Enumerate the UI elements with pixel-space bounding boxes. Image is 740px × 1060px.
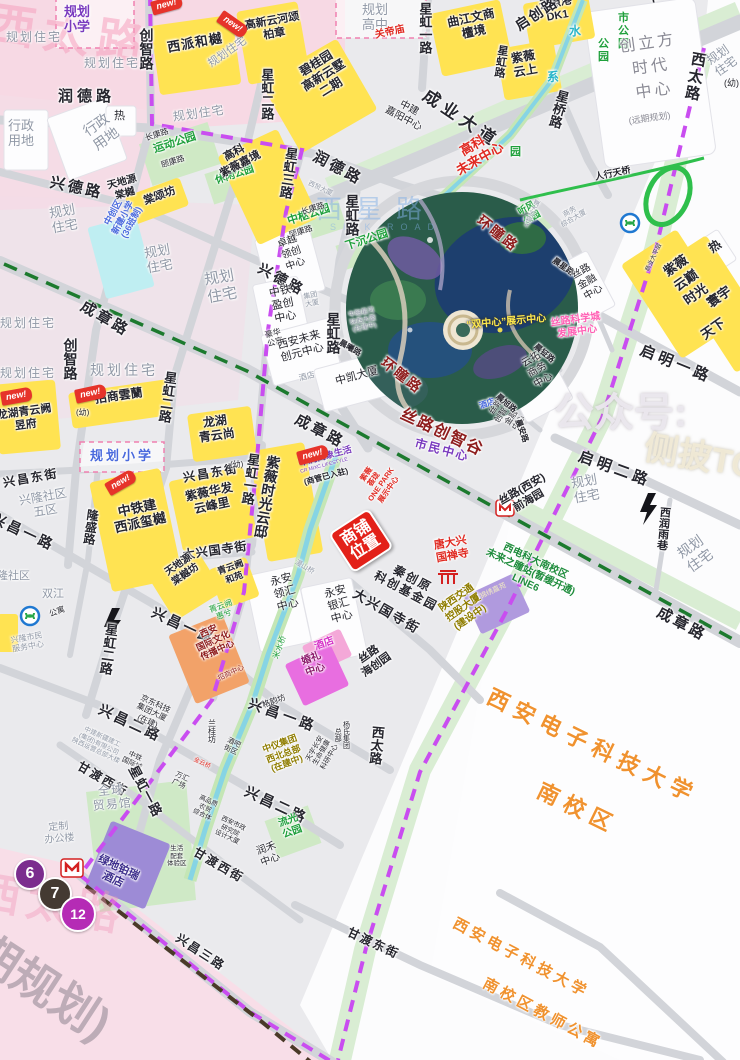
map-label: 甘渡东街 bbox=[345, 925, 402, 962]
map-label: 高品质 农贸 综合体 bbox=[191, 794, 218, 823]
map-label: 酒吧 街区 bbox=[222, 737, 242, 758]
map-label: 定制 办公楼 bbox=[43, 820, 75, 846]
map-label: 规划 小学 bbox=[64, 4, 90, 35]
map-label: 商务 综合大厦 bbox=[556, 202, 588, 230]
map-label: 兴隆社区 bbox=[0, 570, 30, 583]
map-label: 行政 用地 bbox=[8, 118, 34, 149]
map-label: 西派和樾 bbox=[166, 30, 224, 55]
map-label: 丝路 金融 中心 bbox=[570, 262, 605, 303]
map-label: 中融星河 陕西大厦 (在建中) bbox=[348, 307, 378, 335]
map-label: 星桥路 bbox=[546, 88, 571, 130]
map-label: 润德路 bbox=[58, 88, 115, 106]
map-label: 锦绣嘉苑 bbox=[479, 582, 508, 601]
map-label: 丝路 海创园 bbox=[352, 640, 394, 680]
map-label: 创智路 bbox=[138, 28, 155, 70]
map-label: 甘渡西街 bbox=[191, 845, 247, 885]
map-label: 集团 大厦 bbox=[303, 291, 320, 310]
map-label: 公 园 bbox=[598, 38, 609, 64]
map-label: 规划 住宅 bbox=[674, 532, 716, 575]
map-label: 西星路 bbox=[316, 194, 436, 225]
map-label: 规划 住宅 bbox=[143, 241, 174, 276]
map-label: 永安 银汇 中心 bbox=[323, 583, 354, 626]
map-label: 规划住宅 bbox=[0, 366, 56, 380]
map-label: 规划住宅 bbox=[84, 56, 140, 70]
map-label: 兴昌东街 bbox=[2, 466, 60, 490]
map-label: 星虹二路 bbox=[259, 68, 274, 120]
map-label: 成章路 bbox=[77, 298, 133, 340]
map-label: 龙湖青云阙 昱府 bbox=[0, 402, 54, 435]
map-label: 西安市政 研究院 设计大厦 bbox=[213, 815, 246, 847]
map-label: 兴德路 bbox=[48, 174, 105, 203]
map-canvas: 西太路西星路SILK ROAD公众号:侧披TO西太路期规划)规划 小学创智路西派… bbox=[0, 0, 740, 1060]
map-label: 南校区 bbox=[533, 778, 623, 839]
map-label: 园 bbox=[510, 146, 521, 159]
map-label: 紫薇华发 云峰里 bbox=[184, 480, 237, 518]
map-label: 成章路 bbox=[654, 604, 710, 645]
map-label: 启明一路 bbox=[637, 342, 714, 387]
map-label: 规划 住宅 bbox=[570, 471, 601, 506]
map-label: 兴昌三路 bbox=[173, 931, 228, 973]
map-label: 西安未来 创元中心 bbox=[276, 329, 325, 365]
map-label: (远期规划) bbox=[628, 110, 671, 126]
map-label: 婚礼 中心 bbox=[300, 650, 327, 679]
map-label: 环瞳路 bbox=[378, 354, 426, 397]
map-label: 中凯大厦 bbox=[334, 365, 380, 389]
map-label: “双中心”展示中心 bbox=[466, 313, 547, 332]
map-label: (幼) bbox=[230, 460, 243, 469]
map-label: 西安电子科技大学 bbox=[450, 915, 593, 1002]
map-label: 创立方 时代 中心 bbox=[618, 28, 684, 107]
map-label: 规划住宅 bbox=[6, 30, 62, 44]
map-label: 米水桥 bbox=[271, 634, 288, 660]
map-label: 晨曦路 bbox=[337, 338, 363, 358]
map-label: 高新云河颂 柏章 bbox=[244, 10, 303, 45]
map-label: 唐大兴 国禅寺 bbox=[433, 534, 470, 565]
map-label: 隆盛路 bbox=[81, 508, 100, 546]
map-label: 星虹路 bbox=[344, 194, 361, 236]
map-label: 青云阙 和苑 bbox=[216, 558, 249, 587]
map-label: 热 bbox=[114, 110, 125, 123]
map-label: 期规划) bbox=[0, 922, 121, 1051]
map-label: 紫薇 云巅 时光 bbox=[660, 251, 712, 309]
map-label: 棠颂坊 bbox=[142, 185, 177, 208]
map-label: 颐康路 bbox=[160, 154, 186, 170]
map-label: 规划住宅 bbox=[0, 316, 56, 330]
metro-line-12-badge: 12 bbox=[60, 896, 96, 932]
map-label: 星虹路 bbox=[491, 44, 508, 78]
map-label: 润禾 中心 bbox=[255, 840, 282, 869]
map-label: 西太路 bbox=[681, 50, 707, 103]
map-label: 星虹二路 bbox=[97, 622, 119, 676]
map-label: 全球 贸易馆 bbox=[91, 782, 132, 814]
map-label: 公寓 bbox=[48, 605, 66, 619]
map-label: 西太路 bbox=[367, 725, 386, 765]
map-label: 公众号: bbox=[554, 390, 687, 437]
map-label: 金云桥 bbox=[192, 757, 211, 771]
map-label: (幼) bbox=[724, 78, 739, 89]
map-label: 西电科大南校区 未来之瞳站(暂缓开通) LINE6 bbox=[479, 536, 582, 609]
map-label: 生活 配套 体验区 bbox=[167, 845, 187, 868]
map-label: 西润雨巷 bbox=[654, 506, 671, 551]
map-label: 永安 领汇 中心 bbox=[269, 571, 300, 614]
map-label: 兴隆市民 服务中心 bbox=[10, 630, 45, 654]
map-label: 规划 住宅 bbox=[704, 42, 740, 79]
map-label: 侧披TO bbox=[641, 428, 740, 487]
map-label: 碧桂园 高新云墅 二期 bbox=[292, 45, 355, 106]
map-label: 万汇 广场 bbox=[170, 771, 190, 792]
map-label: 中创区 新建小学 (36班制) bbox=[100, 194, 145, 241]
map-label: 成业路 bbox=[646, 0, 690, 5]
map-label: 兰桂坊 bbox=[207, 719, 216, 743]
map-label: 星虹三路 bbox=[277, 146, 299, 200]
map-label: 人行天桥 bbox=[594, 165, 631, 183]
map-label: 星虹一路 bbox=[417, 2, 432, 54]
map-label: 曲江文商 檀境 bbox=[446, 6, 499, 44]
map-label: 中建新疆建工 (集团)有限公司 陕西运营总部大楼 bbox=[70, 723, 127, 766]
map-label: 创智路 bbox=[62, 338, 79, 380]
map-label: 卓越 领创 中心 bbox=[276, 233, 307, 273]
map-label: 热 bbox=[706, 237, 724, 255]
map-label: 水 bbox=[569, 24, 581, 38]
map-label: 酒店 bbox=[298, 370, 316, 383]
map-label: 中仪集团 西北总部 (在建中) bbox=[261, 733, 306, 775]
map-label: 天下 bbox=[698, 315, 728, 342]
map-label: 星虹二路 bbox=[156, 370, 178, 424]
map-label: 环瞳路 bbox=[474, 212, 522, 255]
map-label: 龙湖 青云尚 bbox=[196, 412, 236, 445]
map-label: 招商中心 bbox=[217, 664, 246, 683]
map-label: 兴隆社区 五区 bbox=[18, 486, 70, 522]
map-label: 双江 bbox=[42, 588, 64, 601]
map-label: 系 bbox=[547, 70, 559, 84]
map-label: 寰宇 bbox=[704, 283, 734, 310]
map-label: 规划小学 bbox=[90, 448, 154, 463]
map-label: 漫山桥 bbox=[293, 559, 315, 577]
map-label: 丝路科学城 发展中心 bbox=[550, 311, 603, 341]
map-label: 紫薇 荟珑 ONE PARK 展示中心 bbox=[352, 456, 403, 508]
map-label: 规划 住宅 bbox=[203, 267, 239, 307]
map-label: 星虹一路 bbox=[125, 763, 165, 820]
map-label: (幼) bbox=[76, 408, 89, 417]
map-label: 规划 住宅 bbox=[48, 201, 79, 236]
map-label: 紫薇 云上 bbox=[510, 48, 539, 80]
map-label: 西安电子科技大学 bbox=[483, 684, 703, 809]
map-label: 中铁建 西派玺樾 bbox=[110, 495, 167, 536]
map-label: 丝路(西安) 前海园 bbox=[497, 471, 554, 519]
map-label: 规划住宅 bbox=[90, 362, 158, 379]
map-label: 规划住宅 bbox=[172, 103, 225, 124]
map-label: 兴昌二路 bbox=[242, 783, 311, 827]
map-label: 晨安路 bbox=[513, 418, 530, 444]
